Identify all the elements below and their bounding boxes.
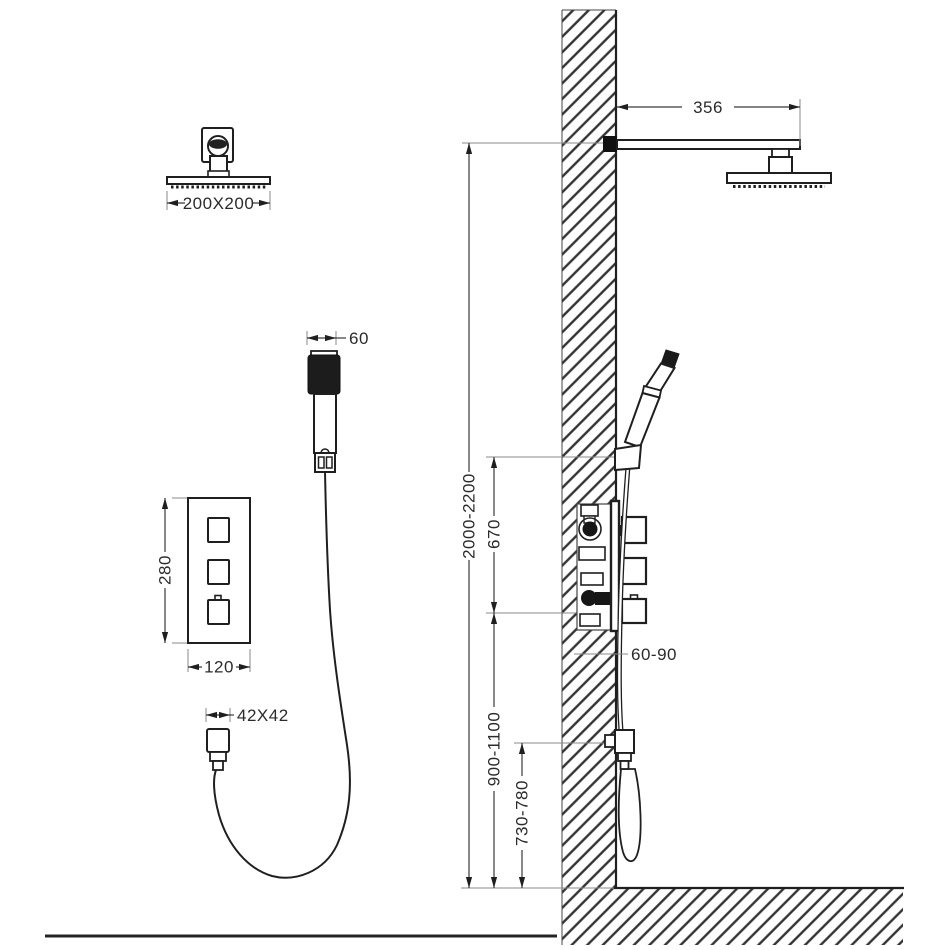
mixer-knob-2-front <box>208 560 229 584</box>
dimension-mixer-height: 280 <box>156 498 188 643</box>
dim-label-60-90: 60-90 <box>631 645 677 664</box>
dim-label-200x200: 200X200 <box>183 194 255 213</box>
rain-shower-side <box>603 136 831 187</box>
head-ball-joint <box>769 157 792 173</box>
outlet-nut-side <box>621 761 629 769</box>
rain-head-plate-side <box>727 173 831 183</box>
dimension-head-size: 200X200 <box>167 191 270 213</box>
dim-label-60: 60 <box>349 329 369 348</box>
floor-hatch <box>616 888 903 945</box>
dimension-arm-projection: 356 <box>617 98 800 146</box>
valve-cartridge-bottom <box>581 590 597 606</box>
shower-installation-diagram: 356 <box>0 0 950 950</box>
dim-label-356: 356 <box>693 98 723 117</box>
dimension-outlet-size: 42X42 <box>206 706 289 725</box>
hand-shower-handle-front <box>314 394 336 453</box>
wall-outlet-front: 42X42 <box>206 706 289 770</box>
hanging-hose-loop <box>619 769 641 861</box>
valve-cartridge-top <box>583 522 598 537</box>
component-views: 200X200 60 <box>156 128 369 878</box>
dim-label-730-780: 730-780 <box>513 780 532 846</box>
rain-head-plate-front <box>167 177 270 184</box>
hand-shower-holder <box>615 445 641 470</box>
mixer-knob-2-side <box>622 558 646 584</box>
dim-label-120: 120 <box>204 658 234 677</box>
mixer-knob-1-front <box>208 518 229 542</box>
dimension-mixer-floor-height: 900-1100 <box>485 613 504 888</box>
drawing-canvas: 356 <box>0 0 950 950</box>
hand-shower-front: 60 <box>307 329 369 472</box>
dimension-mixer-to-holder: 670 <box>485 457 504 613</box>
dim-label-280: 280 <box>156 555 175 585</box>
mixer-knob-3-front <box>208 600 229 624</box>
mixer-knob-3-side <box>622 599 646 623</box>
dimension-outlet-floor-height: 730-780 <box>513 743 532 888</box>
hand-shower-side <box>615 350 679 470</box>
shower-arm <box>617 140 800 149</box>
arm-head-joint <box>772 149 789 157</box>
mixer-valve-side <box>577 501 646 631</box>
outlet-body-side <box>615 730 634 753</box>
hand-shower-head-front <box>308 355 340 394</box>
dim-label-670: 670 <box>485 519 504 549</box>
dimension-hand-shower-width: 60 <box>307 329 369 348</box>
mixer-valve-front: 280 120 <box>156 498 251 677</box>
dim-label-2000-2200: 2000-2200 <box>460 473 479 559</box>
arm-wall-mount <box>603 136 617 152</box>
outlet-body-front <box>207 729 229 752</box>
dim-label-42x42: 42X42 <box>237 706 289 725</box>
installation-side-view: 356 <box>45 10 904 945</box>
dim-label-900-1100: 900-1100 <box>485 712 504 787</box>
dimension-mixer-width: 120 <box>188 649 250 677</box>
rain-shower-front: 200X200 <box>167 128 270 213</box>
dimension-total-height: 2000-2200 <box>460 143 479 888</box>
hand-shower-head-side <box>625 393 660 447</box>
outlet-nut-front <box>213 761 223 770</box>
